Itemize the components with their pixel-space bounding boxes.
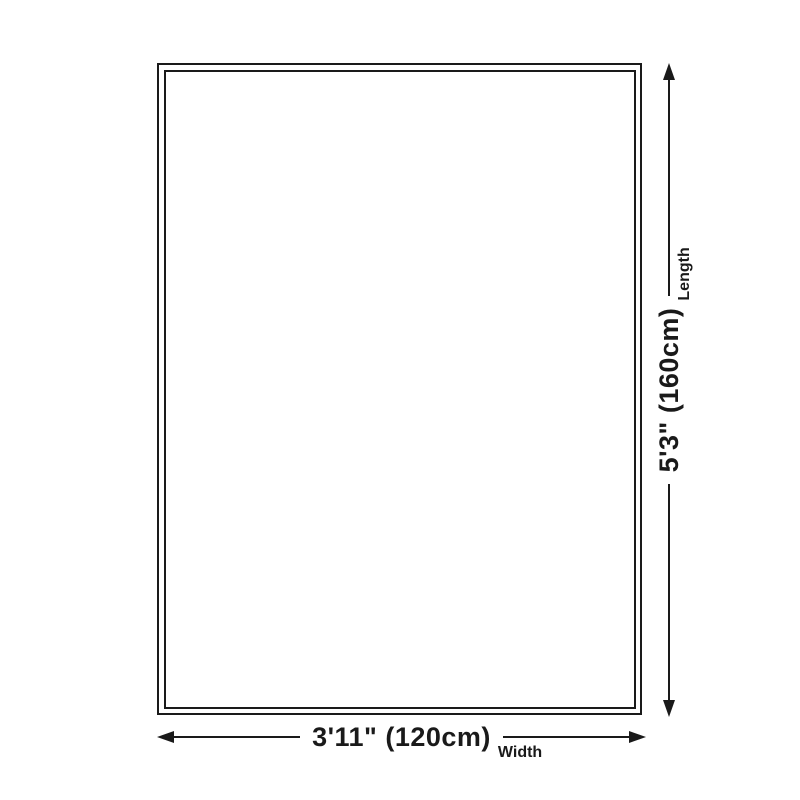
width-label: Width	[498, 744, 542, 762]
rug-outline	[157, 63, 642, 715]
dimension-line-segment	[503, 736, 629, 739]
arrow-left-icon	[157, 731, 174, 743]
arrow-right-icon	[629, 731, 646, 743]
length-label: Length	[676, 247, 694, 300]
width-dimension-arrow: 3'11" (120cm) Width	[157, 707, 646, 767]
arrow-up-icon	[663, 63, 675, 80]
width-value-group: 3'11" (120cm) Width	[312, 719, 491, 755]
dimension-line-segment	[174, 736, 300, 739]
dimension-line-segment	[668, 484, 671, 700]
rug-outline-inner-border	[164, 70, 636, 709]
size-diagram: 3'11" (120cm) Width 5'3" (160cm) Length	[0, 0, 800, 800]
dimension-line-segment	[668, 80, 671, 296]
length-value: 5'3" (160cm)	[651, 308, 687, 473]
length-value-group: 5'3" (160cm) Length	[651, 308, 687, 473]
length-dimension-arrow: 5'3" (160cm) Length	[639, 63, 699, 717]
width-value: 3'11" (120cm)	[312, 719, 491, 755]
arrow-down-icon	[663, 700, 675, 717]
